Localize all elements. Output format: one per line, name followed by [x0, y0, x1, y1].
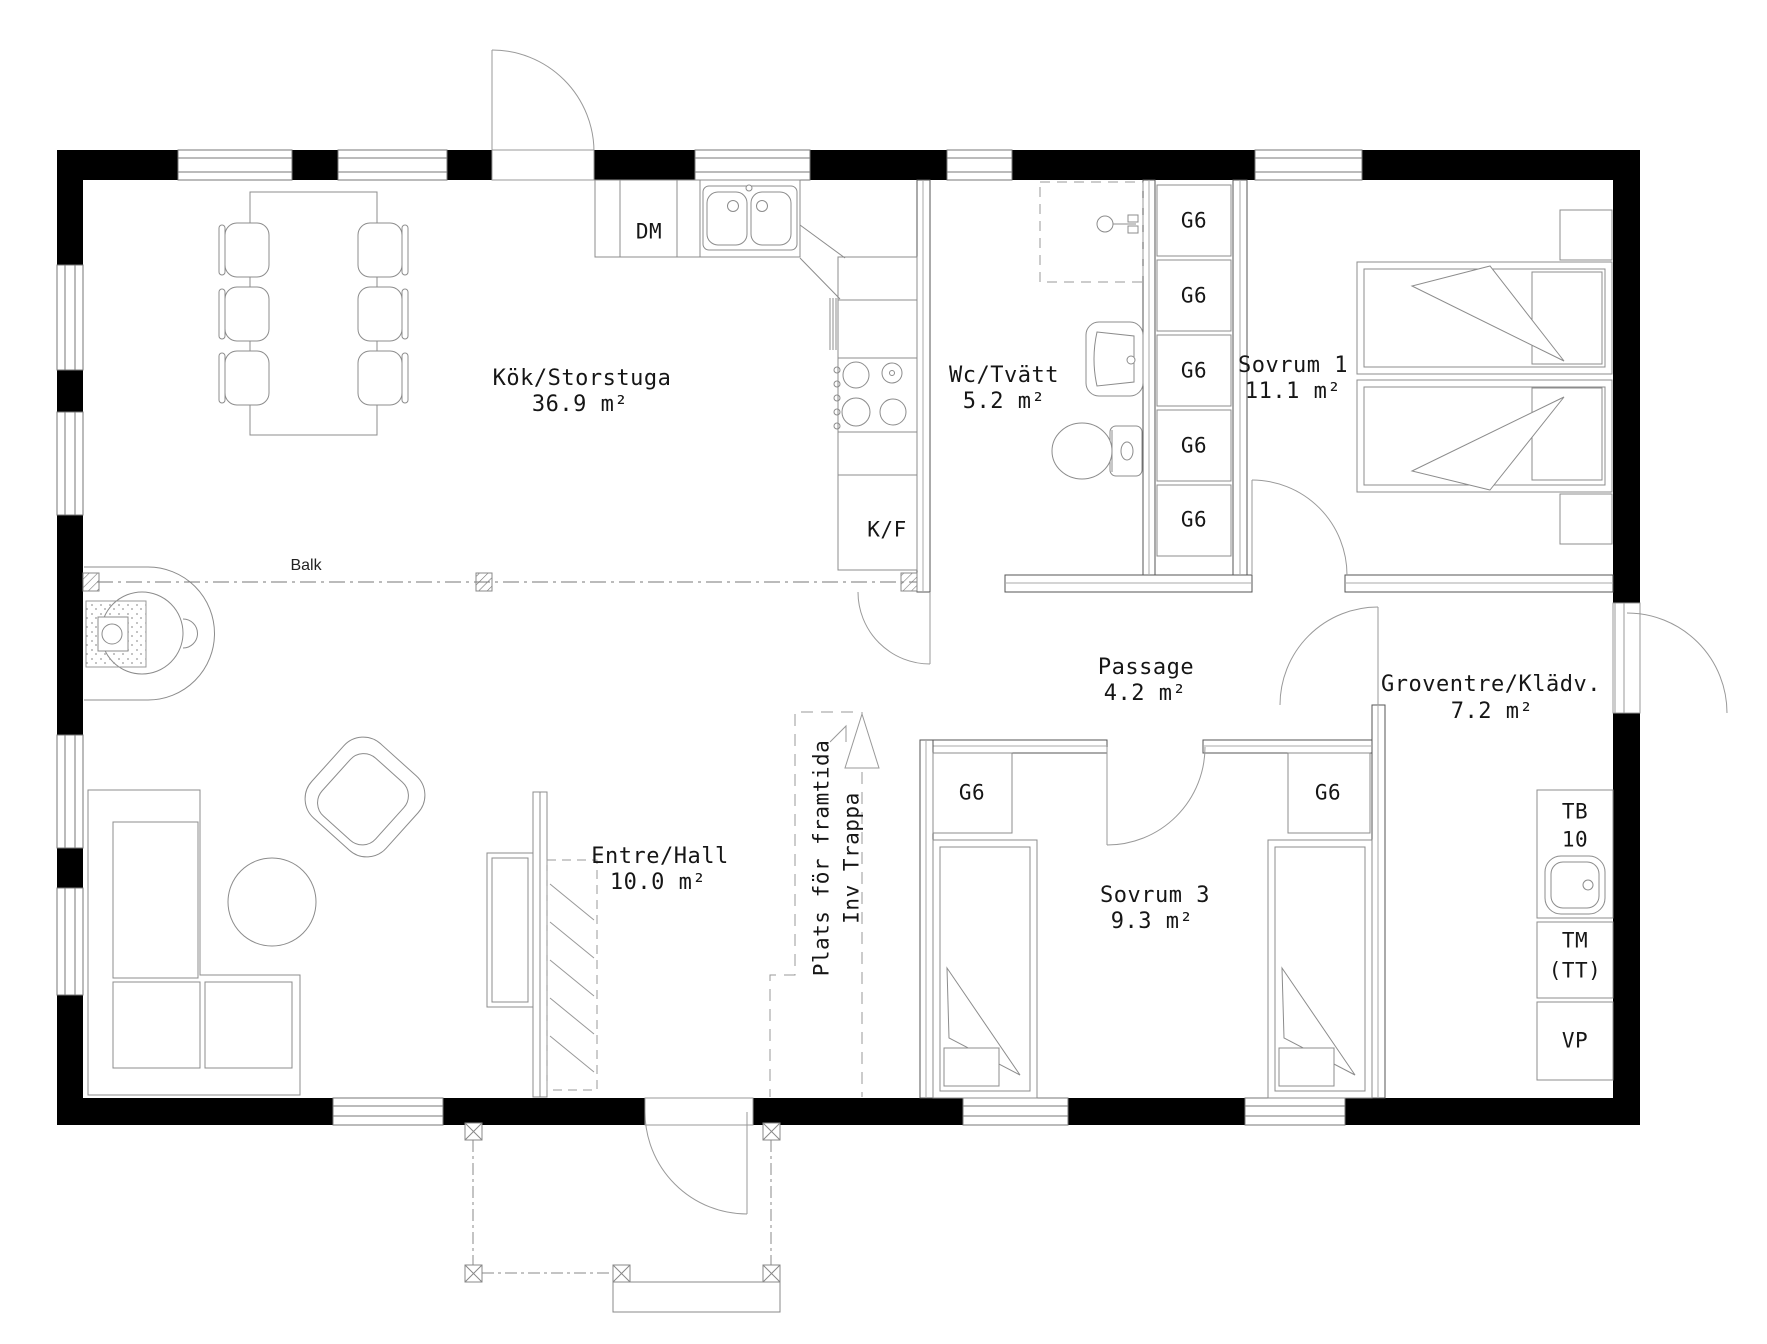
room-area-sovrum1: 11.1 m²	[1245, 381, 1341, 403]
cabinet-label-g6: G6	[1315, 783, 1341, 804]
washer-note: (TT)	[1549, 961, 1602, 982]
cabinet-label-g6: G6	[1181, 510, 1207, 531]
armchair	[294, 726, 435, 867]
entrance-step	[613, 1282, 780, 1312]
future-stair-note-line1: Plats för framtida	[812, 740, 833, 977]
washbasin	[1086, 322, 1143, 396]
side-table	[228, 858, 316, 946]
beam-label: Balk	[290, 558, 321, 574]
kitchen-sink	[703, 185, 797, 250]
beam-line	[83, 573, 917, 591]
room-area-groventre: 7.2 m²	[1451, 701, 1533, 723]
cabinet-label-g6: G6	[959, 783, 985, 804]
room-label-kok: Kök/Storstuga	[493, 368, 672, 390]
washer-label: TM	[1562, 931, 1588, 952]
porch	[465, 1123, 780, 1282]
sink-unit-label: TB	[1562, 802, 1588, 823]
future-stair-note-line2: Inv Trappa	[842, 792, 863, 923]
hall-closet	[547, 860, 597, 1090]
cooktop	[834, 362, 906, 429]
cabinet-label-g6: G6	[1181, 286, 1207, 307]
dining-chair	[219, 223, 408, 405]
cabinet-label-g6: G6	[1181, 211, 1207, 232]
fireplace	[84, 567, 215, 700]
room-label-entre: Entre/Hall	[591, 846, 728, 868]
floorplan-page: Kök/Storstuga 36.9 m² Wc/Tvätt 5.2 m² So…	[0, 0, 1767, 1344]
wardrobe-g6	[933, 753, 1370, 833]
sink-unit-number: 10	[1562, 830, 1588, 851]
room-area-wc: 5.2 m²	[963, 391, 1045, 413]
room-area-sovrum3: 9.3 m²	[1111, 911, 1193, 933]
dishwasher-label: DM	[636, 222, 662, 243]
cabinet-label-g6: G6	[1181, 436, 1207, 457]
room-label-sovrum1: Sovrum 1	[1238, 355, 1348, 377]
fridge-freezer-label: K/F	[867, 520, 906, 541]
nightstand	[1560, 210, 1612, 544]
room-label-groventre: Groventre/Klädv.	[1381, 674, 1601, 696]
sofa	[88, 790, 300, 1095]
heater-label: VP	[1562, 1031, 1588, 1052]
room-area-passage: 4.2 m²	[1104, 683, 1186, 705]
bed	[1357, 262, 1612, 492]
bed	[933, 840, 1372, 1098]
room-label-wc: Wc/Tvätt	[949, 365, 1059, 387]
media-wall	[487, 792, 547, 1097]
room-area-entre: 10.0 m²	[610, 872, 706, 894]
toilet	[1052, 423, 1142, 479]
room-area-kok: 36.9 m²	[532, 394, 628, 416]
cabinet-label-g6: G6	[1181, 361, 1207, 382]
room-label-passage: Passage	[1098, 657, 1194, 679]
room-label-sovrum3: Sovrum 3	[1100, 885, 1210, 907]
shower-mixer-icon	[1097, 215, 1138, 233]
